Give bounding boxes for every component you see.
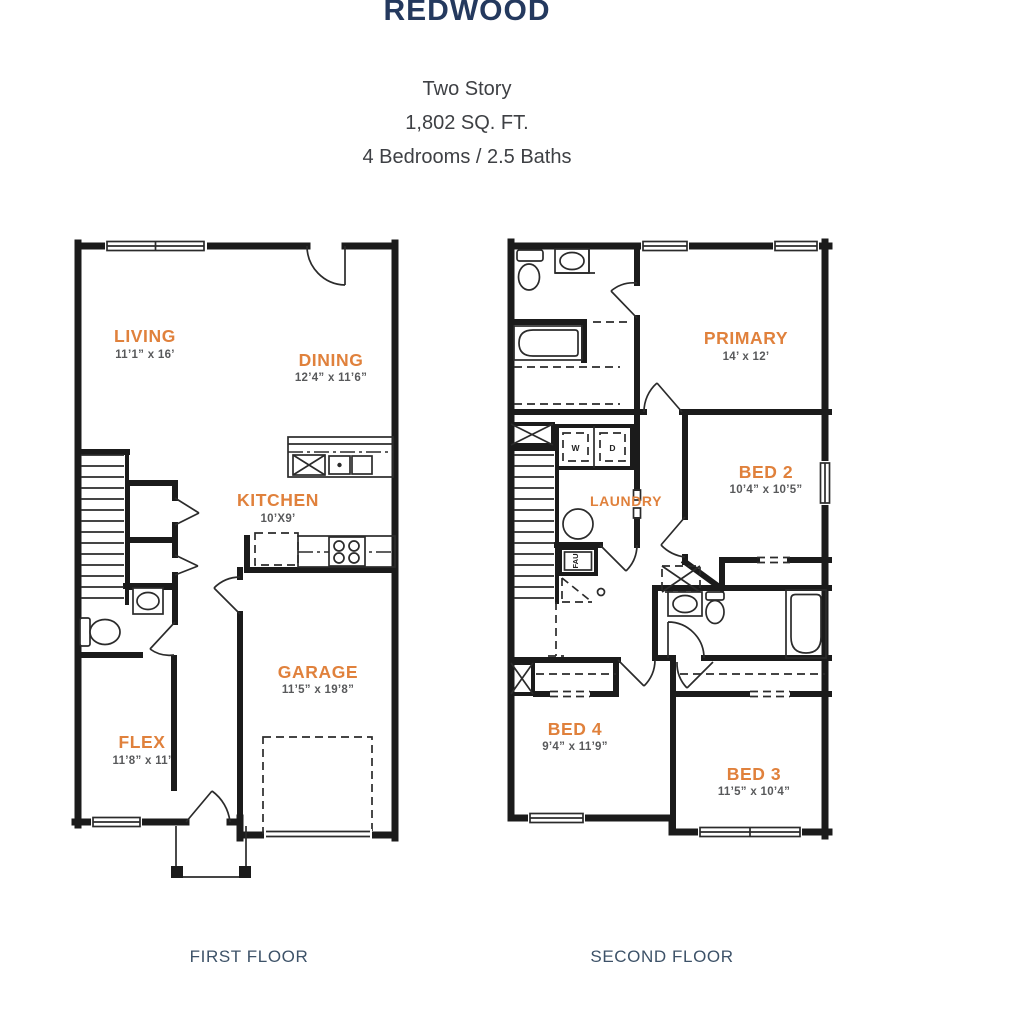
bed2-door-swing [661, 517, 685, 557]
sink-bowl-icon [673, 596, 697, 613]
fau-label: FAU [571, 554, 580, 569]
bath1-door-swing [611, 283, 637, 318]
dining-entry-door-swing [307, 246, 345, 285]
dining-dims: 12’4” x 11’6” [295, 372, 367, 384]
kitchen-counter-lower [255, 533, 395, 567]
primary-label: PRIMARY [704, 328, 788, 348]
dryer-label: D [609, 443, 615, 453]
stairs [81, 455, 124, 598]
bathtub-icon [786, 590, 826, 658]
water-heater-icon [563, 509, 593, 539]
floor-plan-page: REDWOOD Two Story 1,802 SQ. FT. 4 Bedroo… [0, 0, 1017, 1024]
garage-label: GARAGE [278, 662, 358, 682]
laundry-door-swing [600, 545, 637, 571]
bed4-door-swing [618, 660, 655, 686]
second-floor-caption: SECOND FLOOR [590, 947, 733, 966]
washer-label: W [571, 443, 580, 453]
bath2 [668, 590, 826, 658]
floor-plan-drawing: LIVING 11’1” x 16’ DINING 12’4” x 11’6” … [0, 0, 1017, 1024]
toilet-bowl-icon [90, 620, 120, 645]
counter-basin-icon [352, 456, 372, 474]
bath1 [514, 249, 637, 360]
powder-door-swing [150, 622, 175, 655]
laundry-label: LAUNDRY [590, 493, 662, 509]
first-floor-doors [186, 246, 345, 822]
dining-label: DINING [299, 350, 364, 370]
garage-features [263, 737, 372, 841]
garage-entry-door-swing [214, 577, 240, 614]
primary-door-swing [644, 383, 682, 412]
bed2-label: BED 2 [739, 462, 794, 482]
toilet-tank-icon [517, 250, 543, 261]
sink-bowl-icon [137, 593, 159, 610]
bed4-dims: 9’4” x 11’9” [542, 741, 608, 753]
bath2-door-swing [668, 622, 704, 658]
stove-icon [329, 537, 365, 566]
bed2-dims: 10’4” x 10’5” [730, 484, 803, 496]
bed3-dims: 11’5” x 10’4” [718, 786, 790, 798]
toilet-bowl-icon [706, 601, 724, 624]
kitchen-counter-upper [288, 437, 393, 477]
garage-dims: 11’5” x 19’8” [282, 684, 354, 696]
toilet-tank-icon [706, 592, 724, 600]
kitchen-dims: 10’X9’ [260, 513, 295, 525]
stair-wall [127, 452, 128, 603]
bed3-label: BED 3 [727, 764, 782, 784]
closet-door-leaves [175, 498, 199, 575]
sink-bowl-icon [560, 253, 584, 270]
fau-bifold-door [562, 578, 592, 602]
toilet-bowl-icon [519, 264, 540, 290]
front-door-swing [186, 791, 230, 822]
kitchen-label: KITCHEN [237, 490, 319, 510]
first-floor-plan: LIVING 11’1” x 16’ DINING 12’4” x 11’6” … [75, 239, 395, 878]
bed3-door-swing [677, 662, 713, 688]
primary-closet-shelves [514, 367, 620, 404]
toilet-tank-icon [80, 618, 90, 646]
refrigerator-space-icon [255, 533, 298, 565]
bed4-label: BED 4 [548, 719, 603, 739]
garage-parking-area [263, 737, 372, 833]
first-floor-caption: FIRST FLOOR [190, 947, 309, 966]
door-knob-icon [598, 589, 605, 596]
primary-dims: 14’ x 12’ [723, 351, 770, 363]
second-floor-plan: W D FAU [511, 239, 832, 839]
flex-label: FLEX [118, 732, 165, 752]
stair-walls-2 [511, 449, 557, 602]
living-dims: 11’1” x 16’ [115, 349, 175, 361]
flex-dims: 11’8” x 11’ [113, 755, 172, 767]
living-label: LIVING [114, 326, 176, 346]
